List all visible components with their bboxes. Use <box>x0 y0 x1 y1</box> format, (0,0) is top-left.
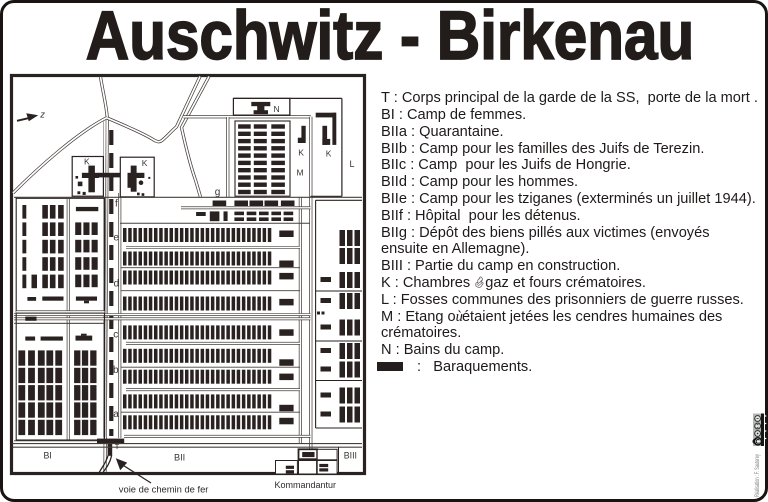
svg-text:g: g <box>215 187 221 198</box>
svg-text:K: K <box>84 157 90 167</box>
svg-text:K: K <box>298 148 304 158</box>
svg-text:BIII: BIII <box>344 450 357 460</box>
svg-text:BI: BI <box>44 450 52 460</box>
svg-text:T: T <box>115 442 120 451</box>
svg-text:b: b <box>113 365 119 376</box>
svg-text:K: K <box>326 149 332 159</box>
svg-text:c: c <box>113 330 118 341</box>
svg-text:M: M <box>297 168 304 178</box>
svg-text:d: d <box>114 279 120 290</box>
svg-text:f: f <box>115 198 118 209</box>
svg-text:z: z <box>39 110 45 121</box>
svg-text:L: L <box>350 159 355 169</box>
svg-text:N: N <box>274 104 280 114</box>
svg-text:BII: BII <box>174 452 185 462</box>
svg-text:voie de chemin de fer: voie de chemin de fer <box>119 483 209 494</box>
svg-text:K: K <box>142 158 148 168</box>
svg-text:Kommandantur: Kommandantur <box>275 480 337 490</box>
svg-text:e: e <box>113 233 119 244</box>
svg-text:a: a <box>113 409 119 420</box>
